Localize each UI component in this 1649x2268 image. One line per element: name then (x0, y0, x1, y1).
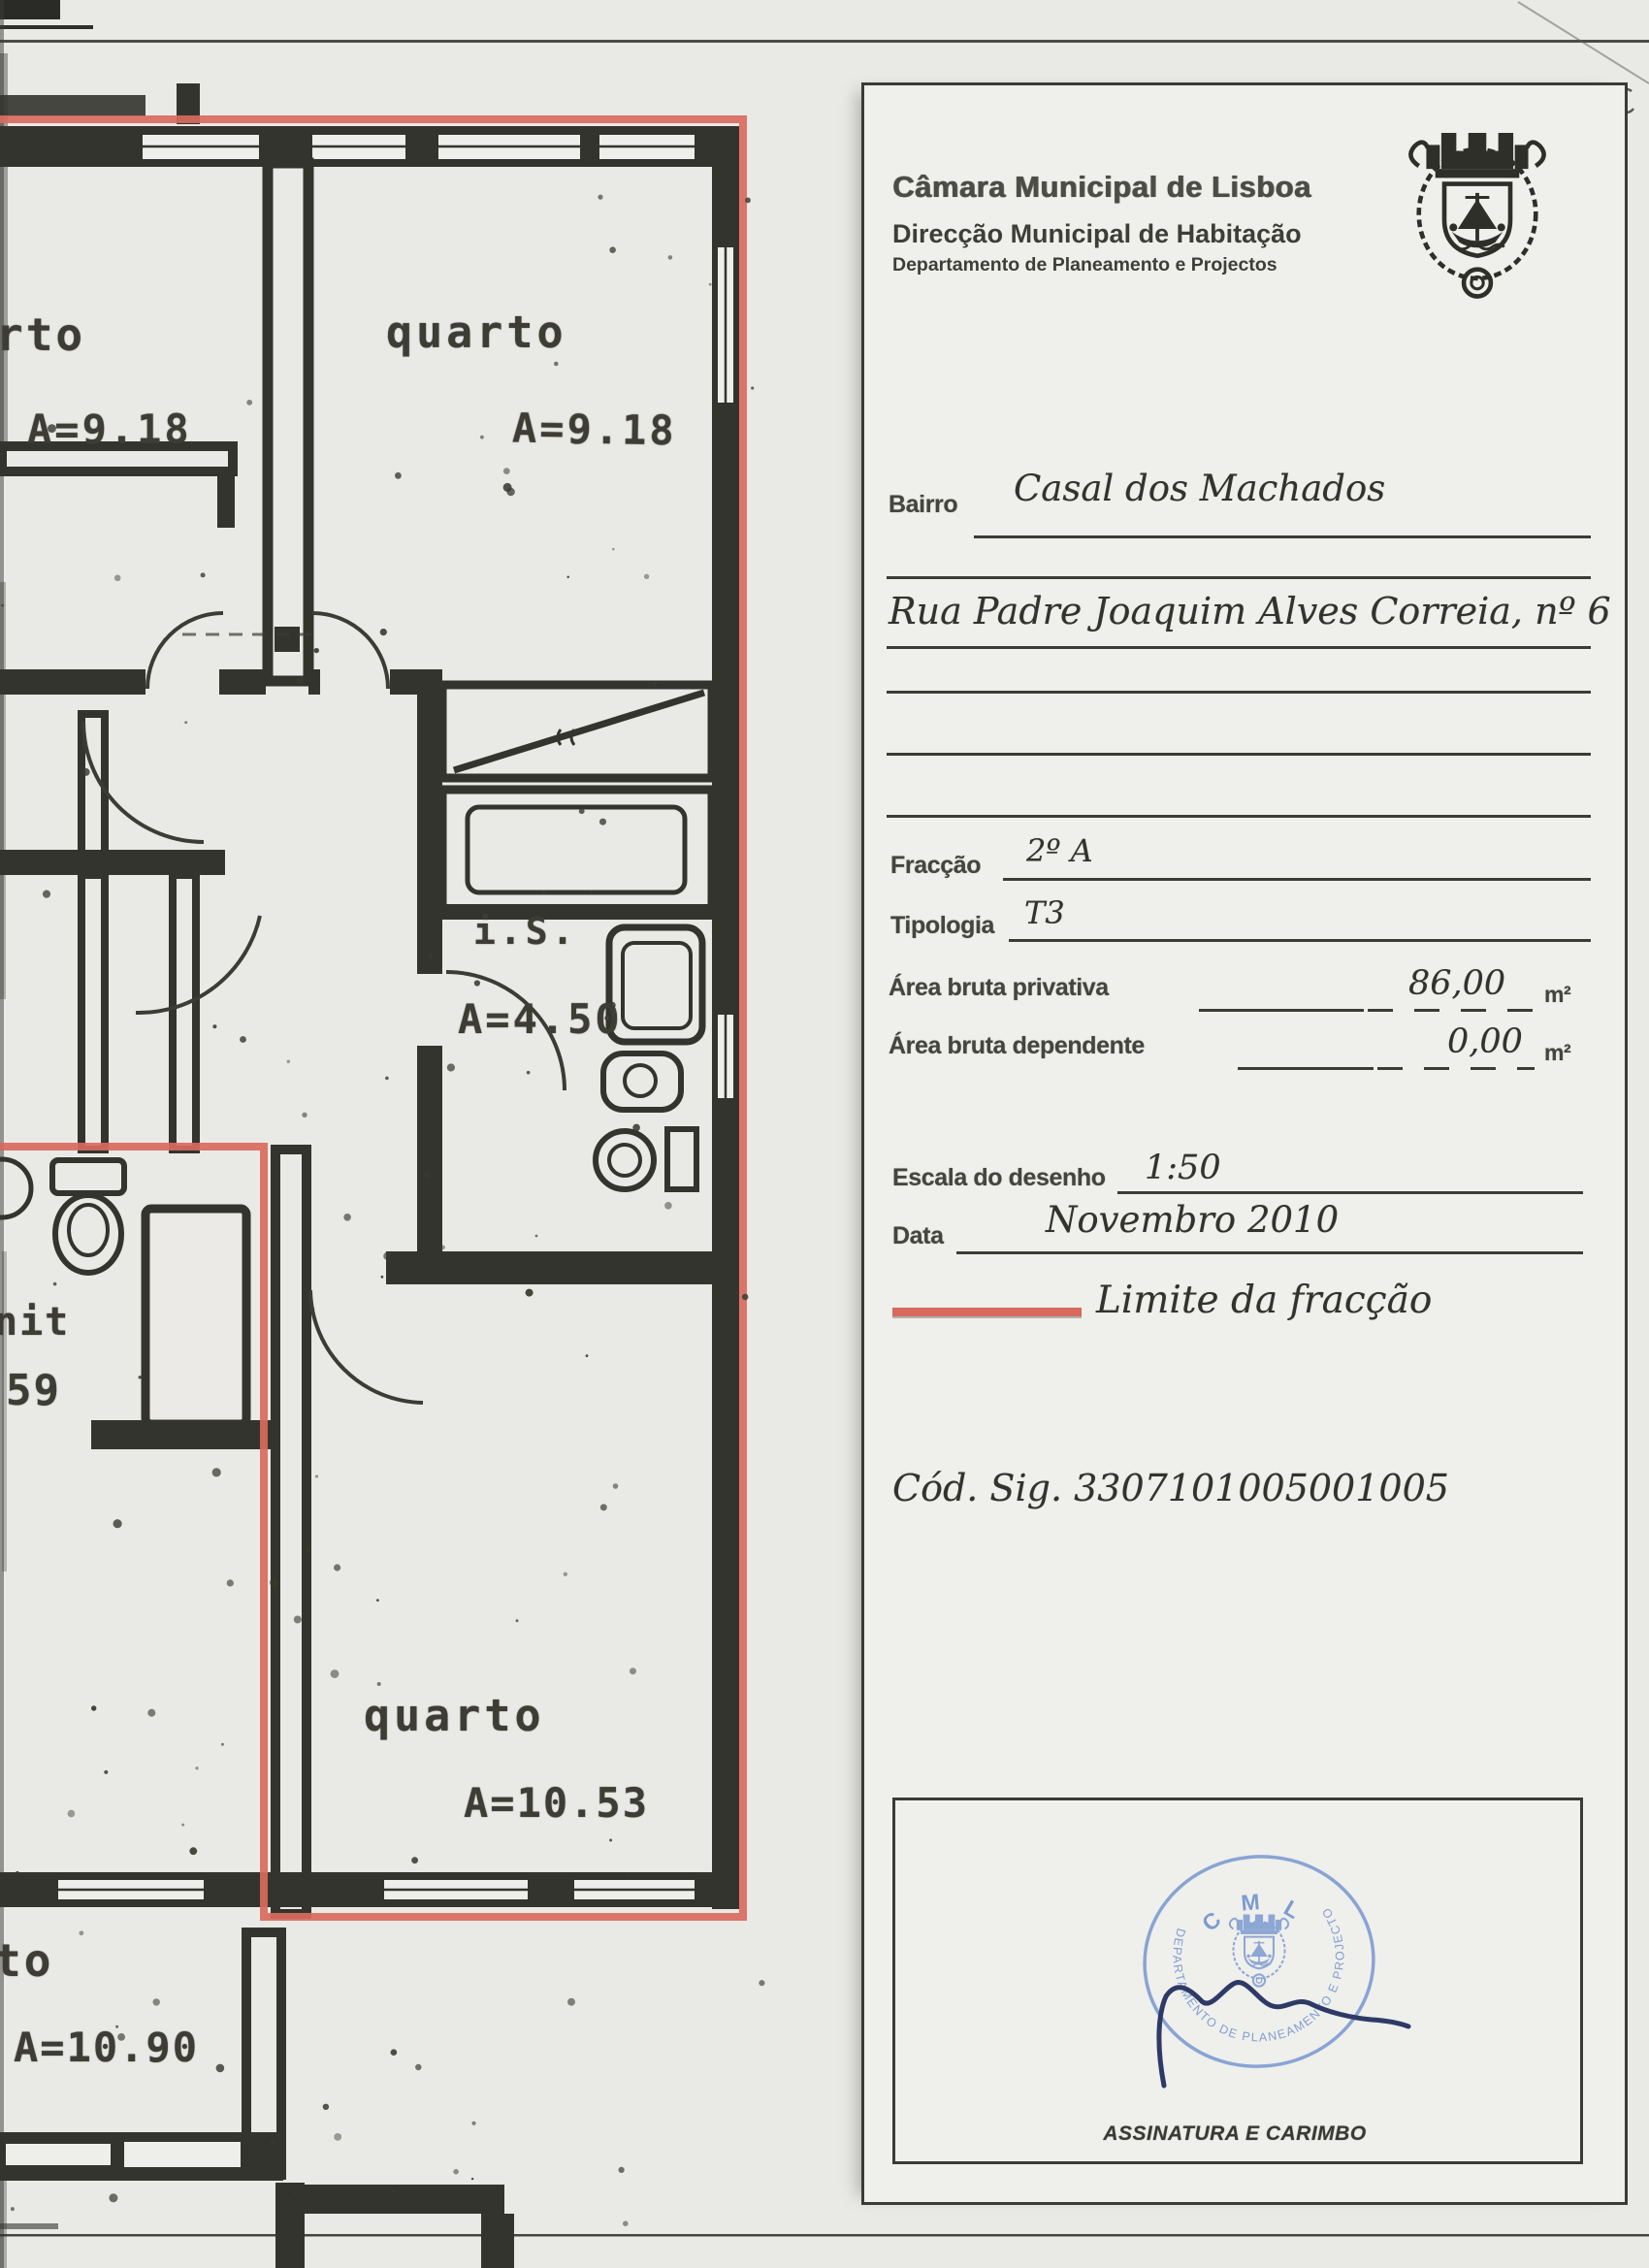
area-privativa-dashes (1368, 1009, 1535, 1012)
fraccao-line (1003, 878, 1591, 881)
address-line-blank (887, 576, 1591, 579)
room-label-quarto-bottom: quarto (364, 1690, 545, 1741)
room-area-partial-59: 59 (6, 1366, 61, 1415)
legend-label: Limite da fracção (1096, 1279, 1432, 1322)
fraction-boundary-line (0, 119, 743, 1917)
escala-label: Escala do desenho (892, 1164, 1106, 1192)
bairro-line (974, 535, 1591, 538)
tipologia-value: T3 (1024, 894, 1065, 931)
org-title: Câmara Municipal de Lisboa (892, 170, 1311, 205)
room-area-top: A=9.18 (512, 405, 678, 455)
cod-sig: Cód. Sig. 3307101005001005 (892, 1467, 1449, 1509)
department-title: Departamento de Planeamento e Projectos (892, 254, 1277, 276)
tipologia-line (1009, 939, 1591, 942)
escala-line (1117, 1191, 1583, 1194)
bairro-label: Bairro (889, 491, 957, 519)
address-line (887, 646, 1591, 649)
area-dependente-label: Área bruta dependente (889, 1032, 1145, 1060)
scanned-floor-plan-document: rto A=9.18 quarto A=9.18 i.S. A=4.50 nit… (0, 0, 1649, 2268)
room-label-partial-nit: nit (0, 1300, 70, 1345)
room-label-quarto-topleft-partial: rto (0, 308, 85, 361)
area-privativa-unit: m² (1544, 982, 1570, 1008)
blank-line-1 (887, 691, 1591, 694)
data-line (956, 1251, 1583, 1254)
escala-value: 1:50 (1145, 1149, 1221, 1187)
legend-red-swatch (892, 1308, 1082, 1316)
room-area-topleft: A=9.18 (27, 405, 192, 453)
area-dependente-line (1238, 1067, 1374, 1070)
neighbour-toilet (52, 1160, 124, 1273)
blank-line-3 (887, 815, 1591, 818)
data-value: Novembro 2010 (1046, 1199, 1339, 1241)
room-label-quarto-bottomleft-partial: to (0, 1934, 53, 1987)
blank-line-2 (887, 753, 1591, 756)
area-dependente-unit: m² (1544, 1040, 1570, 1066)
cml-stamp: DEPARTAMENTO DE PLANEAMENTO E PROJECTOS … (1048, 1824, 1494, 2134)
bairro-value: Casal dos Machados (1014, 468, 1385, 509)
room-label-is: i.S. (473, 910, 578, 953)
wardrobe (145, 1209, 246, 1424)
lisbon-coat-of-arms-icon (1395, 109, 1560, 303)
tipologia-label: Tipologia (890, 912, 994, 940)
fraccao-value: 2º A (1026, 832, 1093, 869)
direction-title: Direcção Municipal de Habitação (892, 219, 1302, 249)
washbasin (0, 1159, 31, 1217)
bidet (603, 1053, 681, 1110)
toilet (596, 1129, 696, 1189)
room-area-bottom: A=10.53 (464, 1779, 649, 1827)
area-dependente-dashes (1377, 1067, 1535, 1070)
room-area-is: A=4.50 (458, 995, 623, 1043)
area-privativa-value: 86,00 (1408, 964, 1505, 1003)
fraccao-label: Fracção (890, 852, 981, 880)
bathtub (609, 927, 702, 1042)
area-dependente-value: 0,00 (1447, 1022, 1523, 1061)
area-privativa-line (1199, 1009, 1364, 1012)
address-value: Rua Padre Joaquim Alves Correia, nº 6 (889, 590, 1611, 632)
data-label: Data (892, 1222, 944, 1250)
room-label-quarto-top: quarto (386, 307, 567, 358)
room-area-bottomleft: A=10.90 (14, 2024, 199, 2071)
area-privativa-label: Área bruta privativa (889, 974, 1109, 1002)
